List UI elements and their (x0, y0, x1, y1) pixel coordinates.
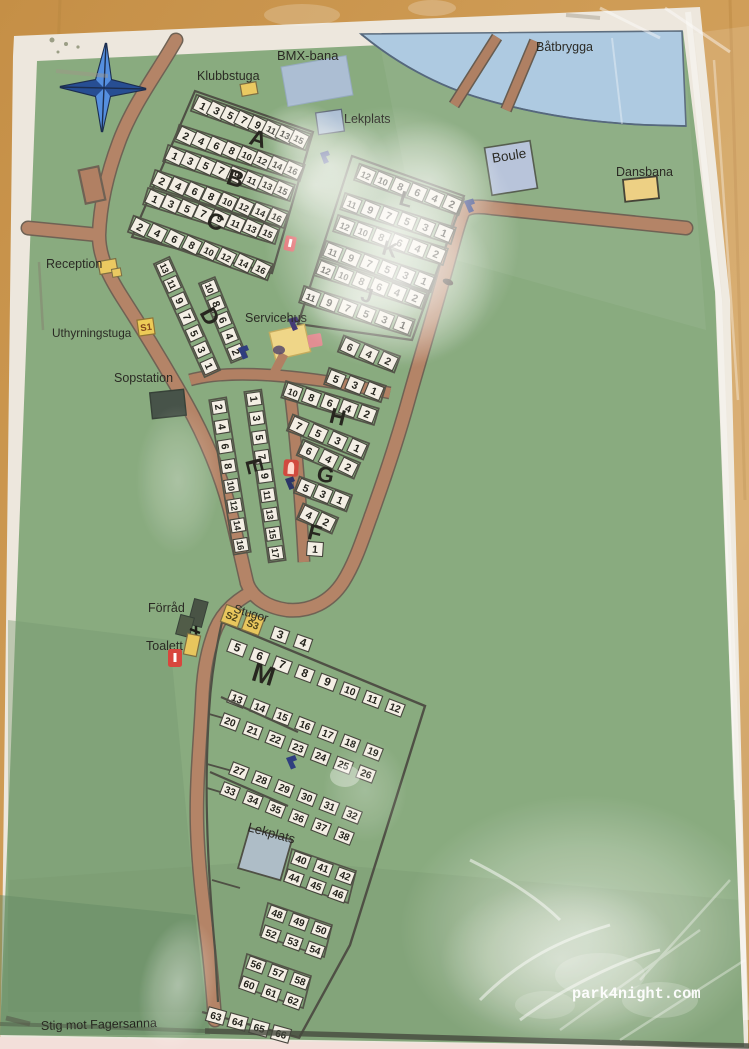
svg-text:park4night.com: park4night.com (572, 985, 701, 1003)
